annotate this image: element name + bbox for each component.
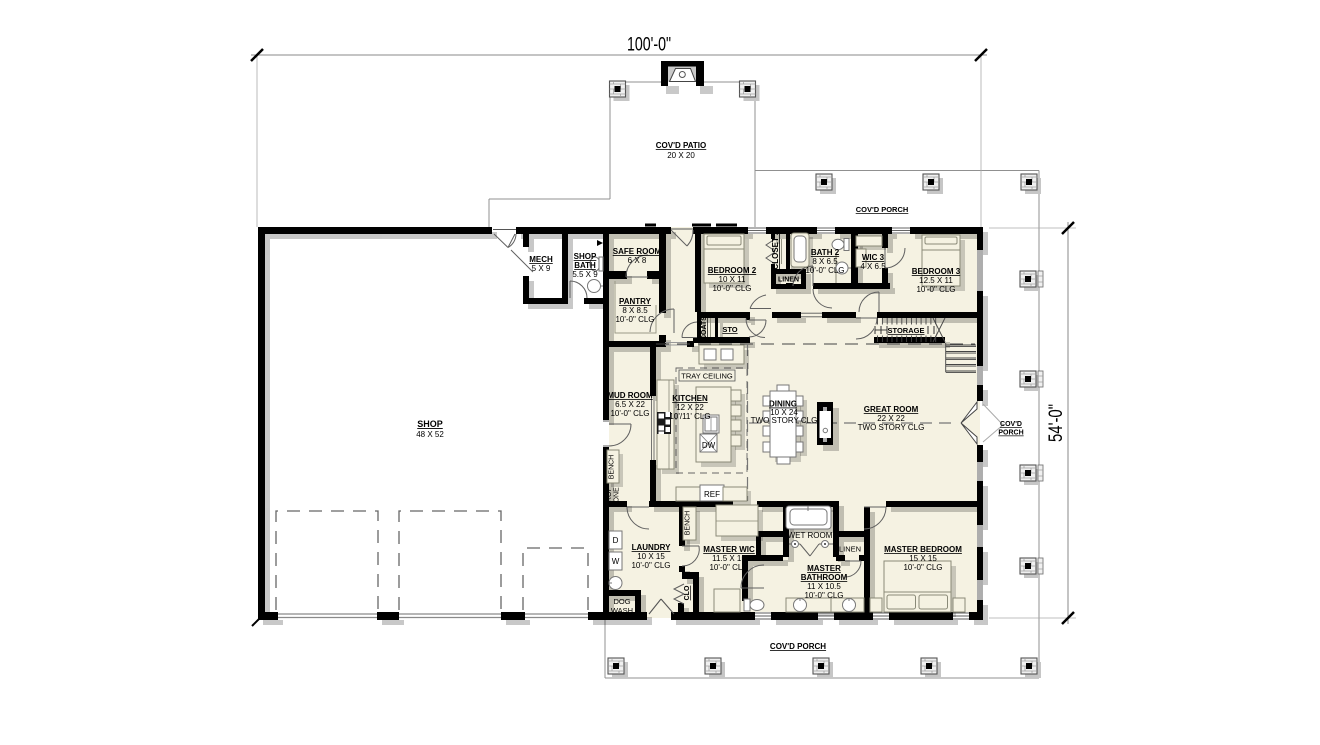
svg-text:5.5 X 9: 5.5 X 9 (572, 270, 598, 279)
svg-text:BATHROOM: BATHROOM (801, 573, 848, 582)
svg-text:PORCH: PORCH (998, 430, 1023, 437)
svg-text:12 X 22: 12 X 22 (676, 403, 704, 412)
svg-text:BEDROOM 3: BEDROOM 3 (912, 267, 961, 276)
svg-text:11.5 X 15: 11.5 X 15 (712, 554, 746, 563)
svg-text:LINEN: LINEN (778, 277, 799, 284)
svg-text:KITCHEN: KITCHEN (672, 394, 708, 403)
svg-text:6.5 X 22: 6.5 X 22 (615, 400, 645, 409)
svg-text:W: W (612, 557, 620, 566)
svg-text:10'-0" CLG: 10'-0" CLG (610, 409, 649, 418)
svg-text:10'-0" CLG: 10'-0" CLG (712, 284, 751, 293)
svg-text:10 X 11: 10 X 11 (719, 275, 747, 284)
svg-text:PANTRY: PANTRY (619, 297, 652, 306)
svg-text:MASTER WIC: MASTER WIC (703, 545, 755, 554)
svg-text:15 X 15: 15 X 15 (909, 554, 937, 563)
svg-text:DW: DW (702, 441, 716, 450)
svg-text:22 X 22: 22 X 22 (877, 414, 905, 423)
svg-text:WASH: WASH (611, 606, 633, 615)
svg-text:5 X 9: 5 X 9 (532, 264, 551, 273)
svg-text:SHOP: SHOP (417, 419, 443, 429)
svg-text:BATH: BATH (574, 261, 596, 270)
svg-text:10'-0" CLG: 10'-0" CLG (804, 591, 843, 600)
svg-text:WIC 3: WIC 3 (862, 253, 885, 262)
svg-text:6 X 8: 6 X 8 (628, 256, 647, 265)
svg-text:COV'D PORCH: COV'D PORCH (856, 205, 909, 214)
svg-text:10 X 15: 10 X 15 (637, 552, 665, 561)
svg-text:MUD ROOM: MUD ROOM (607, 391, 653, 400)
svg-text:REF: REF (704, 490, 720, 499)
svg-text:10'-0" CLG: 10'-0" CLG (903, 563, 942, 572)
svg-text:BENCH: BENCH (609, 455, 616, 480)
svg-text:CLOSET 2: CLOSET 2 (771, 230, 780, 270)
svg-text:D: D (613, 536, 619, 545)
svg-text:DROP: DROP (606, 487, 613, 508)
svg-text:STO: STO (722, 325, 737, 334)
svg-text:COV'D: COV'D (1000, 421, 1022, 428)
svg-text:COV'D PATIO: COV'D PATIO (656, 141, 707, 150)
svg-text:8 X 6.5: 8 X 6.5 (812, 257, 838, 266)
svg-text:COATS: COATS (701, 316, 708, 340)
svg-text:CLO: CLO (684, 585, 691, 600)
svg-text:11 X 10.5: 11 X 10.5 (807, 582, 841, 591)
svg-text:10'-0" CLG: 10'-0" CLG (615, 315, 654, 324)
svg-text:LAUNDRY: LAUNDRY (632, 543, 671, 552)
svg-text:COV'D PORCH: COV'D PORCH (770, 642, 826, 651)
svg-text:54'-0": 54'-0" (1046, 404, 1067, 442)
svg-text:TWO STORY CLG: TWO STORY CLG (751, 416, 818, 425)
svg-text:10'-0" CLG: 10'-0" CLG (805, 266, 844, 275)
svg-text:BENCH: BENCH (685, 511, 692, 536)
svg-text:100'-0": 100'-0" (627, 35, 671, 56)
svg-text:10'-0" CLG: 10'-0" CLG (709, 563, 748, 572)
svg-text:10'-0" CLG: 10'-0" CLG (916, 285, 955, 294)
svg-text:MASTER: MASTER (807, 564, 841, 573)
svg-text:MECH: MECH (529, 255, 553, 264)
svg-text:20 X 20: 20 X 20 (667, 151, 695, 160)
svg-text:LINEN: LINEN (839, 545, 861, 554)
svg-text:10'/11' CLG: 10'/11' CLG (669, 412, 710, 421)
svg-text:BEDROOM 2: BEDROOM 2 (708, 266, 757, 275)
svg-text:SHOP: SHOP (574, 252, 597, 261)
svg-text:MASTER BEDROOM: MASTER BEDROOM (884, 545, 962, 554)
svg-text:TWO STORY CLG: TWO STORY CLG (858, 423, 925, 432)
svg-text:WET ROOM: WET ROOM (788, 531, 833, 540)
svg-text:STORAGE: STORAGE (888, 326, 925, 335)
svg-text:TRAY CEILING: TRAY CEILING (681, 372, 733, 381)
svg-text:12.5 X 11: 12.5 X 11 (919, 276, 953, 285)
svg-text:BATH 2: BATH 2 (811, 248, 840, 257)
svg-text:GREAT ROOM: GREAT ROOM (864, 405, 919, 414)
svg-text:48 X 52: 48 X 52 (416, 430, 444, 439)
svg-text:SAFE ROOM: SAFE ROOM (613, 247, 662, 256)
svg-text:DOG: DOG (613, 597, 630, 606)
svg-text:8 X 8.5: 8 X 8.5 (622, 306, 648, 315)
svg-text:4 X 6.5: 4 X 6.5 (860, 262, 886, 271)
svg-text:ZONE: ZONE (614, 487, 621, 507)
svg-text:10'-0" CLG: 10'-0" CLG (631, 561, 670, 570)
